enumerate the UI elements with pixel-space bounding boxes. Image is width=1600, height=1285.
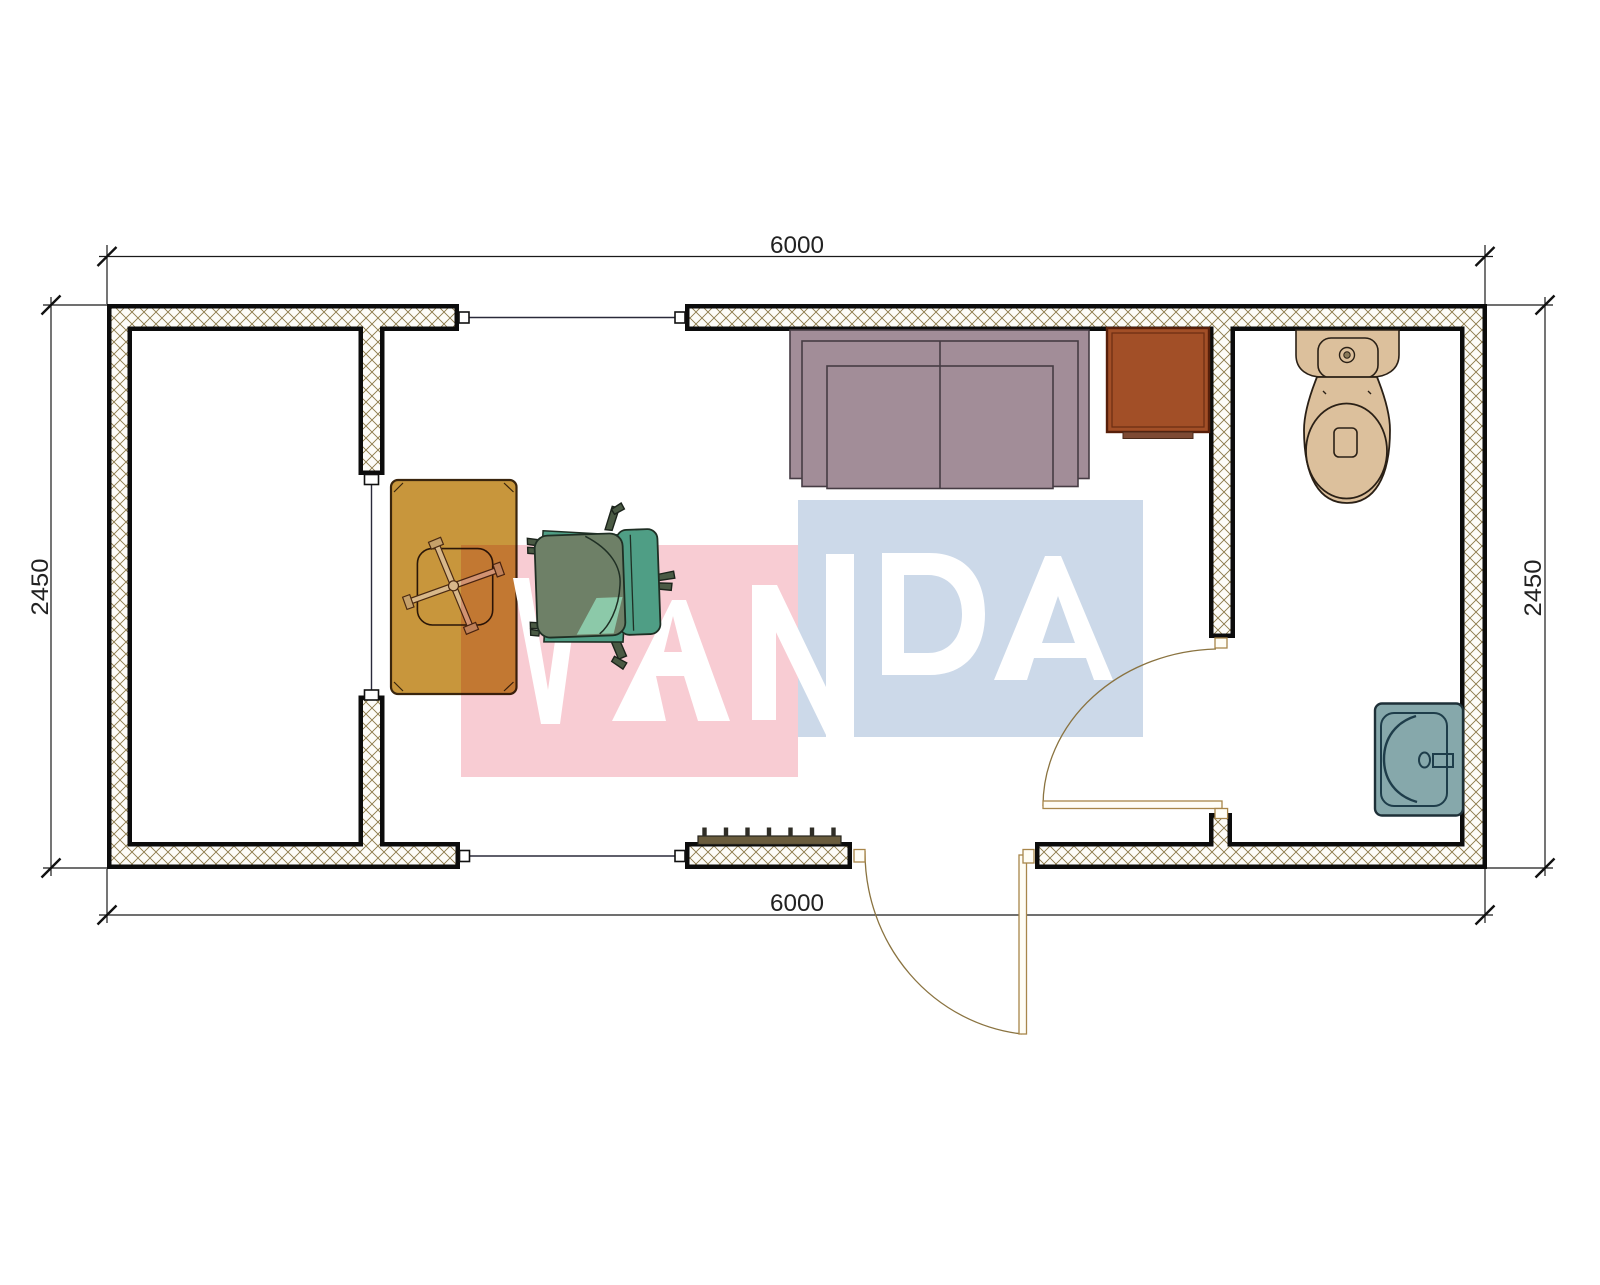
svg-text:2450: 2450 xyxy=(1520,560,1547,617)
svg-text:2450: 2450 xyxy=(27,559,54,616)
svg-text:6000: 6000 xyxy=(770,232,824,259)
svg-text:6000: 6000 xyxy=(770,890,824,917)
